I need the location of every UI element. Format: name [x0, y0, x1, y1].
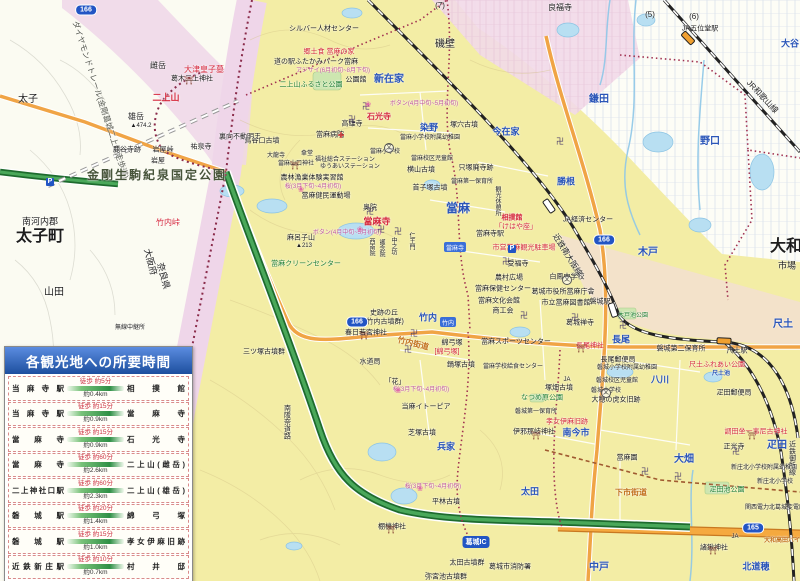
map-label: 當麻校区児童館	[411, 156, 453, 162]
map-label: 受福寺	[508, 261, 529, 268]
map-label: 木戸池公園	[618, 313, 648, 319]
map-label: 雌岳	[150, 62, 166, 70]
legend-walk-time: 徒歩 約60分	[67, 454, 124, 462]
map-label: 新庄北小学校附属幼稚園	[731, 465, 797, 471]
map-label: 南阪奈道路	[284, 405, 291, 440]
map-label: JA	[563, 377, 570, 383]
map-label: ▲213	[296, 243, 312, 249]
legend-walk-time: 徒歩 約20分	[67, 505, 124, 513]
map-label: 當麻文化会館	[478, 298, 520, 305]
map-label: 麻呂子山	[287, 235, 315, 242]
map-label: 石光寺	[367, 113, 391, 121]
legend-distance: 約1.4km	[67, 518, 124, 526]
map-label: 當麻保健センター	[475, 286, 531, 293]
map-label: JR和歌山線	[745, 79, 779, 115]
station-marker	[542, 198, 556, 214]
map-label: 當麻第一保育所	[451, 179, 493, 185]
map-label: 鎌田	[589, 95, 609, 105]
legend-walk-arrow: 徒歩 約15分約1.0km	[64, 531, 127, 552]
legend-from-station: 磐城駅	[12, 536, 64, 547]
map-label: 大阪府	[142, 248, 158, 276]
map-label: 奈良県	[155, 262, 171, 290]
legend-row: 磐城駅徒歩 約20分約1.4km綿弓塚	[8, 504, 189, 529]
map-label: 八川	[651, 376, 669, 385]
map-label: なつめ原公園	[521, 395, 563, 402]
map-label: 勝根	[557, 178, 575, 187]
map-label: 竹内峠	[156, 219, 180, 227]
map-label: 葛城市役所當麻庁舎	[532, 289, 595, 296]
temple-icon: 卍	[366, 208, 374, 216]
map-label: 當麻小学校附属幼稚園	[400, 135, 460, 141]
map-label: 史跡の丘	[370, 310, 398, 317]
map-label: ダイヤモンドトレール(金剛葛城二上縦走歩道)	[71, 20, 130, 179]
map-label: 市営當麻観光駐車場	[493, 245, 556, 252]
legend-walk-time: 徒歩 約5分	[67, 378, 124, 386]
map-label: ▲474.2	[131, 123, 152, 129]
temple-icon: 卍	[502, 258, 510, 266]
map-label: 疋田	[767, 441, 787, 451]
legend-destination: 二上山(雌岳)	[127, 459, 185, 470]
map-label: 當麻寺駅	[476, 231, 504, 238]
legend-walk-time: 徒歩 約15分	[67, 403, 124, 411]
map-label: 綿弓塚	[442, 340, 463, 347]
hospital-icon: ✚	[338, 132, 345, 140]
map-label: 近鉄南大阪線	[551, 233, 583, 278]
map-label: 金剛生駒紀泉国定公園	[87, 169, 227, 181]
legend-walk-arrow: 徒歩 約15分約0.9km	[64, 403, 127, 424]
map-label: 大龍寺	[267, 153, 285, 159]
map-label: 二上山	[152, 94, 179, 103]
shrine-icon: ⛩	[184, 77, 194, 85]
map-label: 新在家	[374, 75, 404, 85]
map-label: 竹内街道	[397, 336, 430, 352]
legend-destination: 二上山(雄岳)	[127, 485, 185, 496]
map-label: 無線中継所	[115, 325, 145, 331]
map-label: 尺土駅	[727, 348, 748, 355]
map-label: 孝女伊麻旧跡	[546, 419, 588, 426]
temple-icon: 卍	[556, 138, 564, 146]
parking-icon: P	[46, 178, 54, 186]
map-label: 磐城第二保育所	[657, 346, 706, 353]
tourist-map-taima-katsuragi: 太子南河内郡太子町山田ダイヤモンドトレール(金剛葛城二上縦走歩道)雌岳大津皇子墓…	[0, 0, 800, 581]
legend-row: 二上神社口駅徒歩 約60分約2.3km二上山(雄岳)	[8, 478, 189, 503]
temple-icon: 卍	[641, 468, 649, 476]
legend-walk-arrow: 徒歩 約15分約0.9km	[64, 429, 127, 450]
legend-distance: 約0.9km	[67, 442, 124, 450]
legend-distance: 約2.6km	[67, 467, 124, 475]
map-label: 野口	[700, 137, 720, 147]
map-label: 太子	[18, 95, 38, 105]
map-label: 中之坊	[390, 237, 396, 255]
legend-from-station: 當麻寺	[12, 459, 64, 470]
map-label: ボタン(4月中旬~5月初旬)	[390, 101, 458, 107]
flower-icon: ❀	[395, 387, 402, 395]
legend-row: 當麻寺徒歩 約15分約0.9km石光寺	[8, 427, 189, 452]
map-label: 鳥谷口古墳	[245, 138, 280, 145]
map-label: 下市街道	[615, 489, 647, 497]
map-label: 農林漁業体験実習館	[281, 175, 344, 182]
shrine-icon: ⛩	[359, 332, 369, 340]
map-label: シルバー人材センター	[289, 26, 359, 33]
map-label: (竹内古墳群)	[364, 319, 404, 326]
map-label: 大和高田バイパス	[764, 538, 800, 544]
legend-from-station: 二上神社口駅	[12, 485, 64, 496]
map-label: 護念院	[378, 239, 384, 257]
legend-distance: 約0.9km	[67, 416, 124, 424]
legend-row: 近鉄新庄駅徒歩 約10分約0.7km村井邸	[8, 555, 189, 580]
map-label: 観光休憩所	[494, 186, 500, 216]
temple-icon: 卍	[404, 346, 412, 354]
legend-distance: 約0.4km	[67, 391, 124, 399]
legend-walk-arrow: 徒歩 約20分約1.4km	[64, 505, 127, 526]
map-label: 大穂の虎女旧跡	[592, 397, 641, 404]
flower-icon: ❀	[298, 186, 305, 194]
legend-from-station: 近鉄新庄駅	[12, 561, 64, 572]
map-label: 関西電力北葛城変電所	[745, 505, 800, 511]
temple-icon: 卍	[619, 322, 627, 330]
legend-distance: 約1.0km	[67, 544, 124, 552]
map-label: 雄岳	[128, 113, 144, 121]
temple-icon: 卍	[377, 226, 385, 234]
map-label: 南今市	[562, 429, 589, 438]
map-label: 疋田郵便局	[717, 390, 752, 397]
legend-rows: 当麻寺駅徒歩 約5分約0.4km相撲館当麻寺駅徒歩 約15分約0.9km當麻寺當…	[5, 374, 192, 581]
temple-icon: 卍	[394, 228, 402, 236]
map-label: 水道局	[360, 359, 381, 366]
parking-icon: P	[508, 245, 516, 253]
map-label: 鹿谷寺跡	[113, 147, 141, 154]
temple-icon: 卍	[348, 116, 356, 124]
map-label: 桜(3月下旬~4月初旬)	[285, 184, 341, 190]
shrine-icon: ⛩	[708, 547, 718, 555]
map-label: 平林古墳	[432, 499, 460, 506]
map-label: 岩屋峠	[153, 147, 174, 154]
legend-walk-time: 徒歩 約15分	[67, 429, 124, 437]
temple-icon: 卍	[674, 473, 682, 481]
map-label: (5)	[645, 11, 655, 19]
route-shield: 166	[593, 235, 615, 246]
shrine-icon: ⛩	[386, 526, 396, 534]
legend-walk-arrow: 徒歩 約60分約2.3km	[64, 480, 127, 501]
legend-destination: 村井邸	[127, 561, 185, 572]
legend-destination: 綿弓塚	[127, 510, 185, 521]
map-label: 染野	[420, 124, 438, 133]
legend-from-station: 当麻寺駅	[12, 408, 64, 419]
map-label: 磐城校区児童館	[596, 378, 638, 384]
map-label: 太田古墳群	[450, 560, 485, 567]
route-shield: 166	[346, 317, 368, 328]
map-label: 當麻学校給食センター	[483, 364, 543, 370]
busstop-chip: 竹内	[440, 317, 456, 327]
map-label: 塚畑古墳	[545, 385, 573, 392]
map-label: 太田	[521, 488, 539, 497]
shrine-icon: ⛩	[747, 432, 757, 440]
school-icon: 文	[601, 388, 611, 398]
map-label: 長尾	[612, 336, 630, 345]
map-label: 横山古墳	[407, 167, 435, 174]
map-label: 郷土食 當麻の家	[304, 49, 355, 56]
map-label: 當麻健民運動場	[302, 193, 351, 200]
map-label: 木戸	[638, 248, 658, 258]
map-label: 北道穂	[742, 563, 769, 572]
map-label: 磐城小学校附属幼稚園	[597, 365, 657, 371]
map-label: 仁王門	[408, 232, 414, 250]
legend-destination: 相撲館	[127, 383, 185, 394]
route-shield: 165	[742, 523, 764, 534]
map-label: 鍋塚古墳	[447, 362, 475, 369]
map-label: 疋田池公園	[710, 487, 745, 494]
map-label: 桜(3月下旬~4月初旬)	[405, 484, 461, 490]
legend-distance: 約2.3km	[67, 493, 124, 501]
map-label: 大津皇子墓	[184, 66, 224, 74]
legend-destination: 孝女伊麻旧跡	[127, 536, 185, 547]
legend-walk-time: 徒歩 約10分	[67, 556, 124, 564]
map-label: 二上山ふるさと公園	[280, 82, 343, 89]
map-label: 傘堂	[301, 151, 313, 157]
legend-walk-arrow: 徒歩 約5分約0.4km	[64, 378, 127, 399]
map-label: 磐城第一保育所	[515, 409, 557, 415]
flower-icon: ❀	[365, 101, 372, 109]
shrine-icon: ⛩	[290, 162, 300, 170]
map-label: 當麻	[446, 202, 470, 214]
legend-walk-time: 徒歩 約60分	[67, 480, 124, 488]
map-label: 商工会	[493, 308, 514, 315]
map-label: 公園館	[346, 77, 367, 84]
map-label: 今在家	[492, 128, 519, 137]
map-label: 市立當麻図書館	[542, 300, 591, 307]
school-icon: 文	[384, 143, 394, 153]
map-label: 長尾郵便局	[601, 357, 636, 364]
map-label: 道の駅ふたかみパーク當麻	[274, 59, 358, 66]
legend-walk-arrow: 徒歩 約60分約2.6km	[64, 454, 127, 475]
legend-row: 当麻寺駅徒歩 約15分約0.9km當麻寺	[8, 402, 189, 427]
map-label: 近鉄御所線	[789, 441, 796, 476]
flower-icon: ❀	[357, 226, 364, 234]
map-label: ボタン(4月中旬~5月初旬)	[313, 230, 381, 236]
legend-destination: 石光寺	[127, 434, 185, 445]
map-label: 福祉総合ステーション	[315, 157, 375, 163]
map-label: JA	[731, 534, 738, 540]
map-label: 兵家	[437, 443, 455, 452]
map-label: アジサイ(6月初旬~8月下旬)	[296, 68, 370, 74]
station-marker	[716, 337, 731, 345]
map-label: 大和	[770, 239, 800, 255]
map-label: 三ツ塚古墳群	[243, 349, 285, 356]
map-label: 中戸	[589, 563, 609, 573]
legend-title: 各観光地への所要時間	[5, 347, 192, 374]
map-label: 当麻イトーピア	[402, 404, 451, 411]
legend-from-station: 當麻寺	[12, 434, 64, 445]
legend-row: 磐城駅徒歩 約15分約1.0km孝女伊麻旧跡	[8, 529, 189, 554]
map-label: 「けはや座」	[495, 224, 537, 231]
map-label: 尺土池	[712, 371, 730, 377]
map-label: 新庄北小学校	[757, 479, 793, 485]
map-label: JA経済センター	[563, 217, 613, 224]
map-label: (6)	[689, 13, 699, 21]
flower-icon: ❀	[417, 485, 424, 493]
map-label: 當麻園	[617, 455, 638, 462]
route-shield: 166	[75, 5, 97, 16]
legend-row: 当麻寺駅徒歩 約5分約0.4km相撲館	[8, 376, 189, 401]
legend-from-station: 当麻寺駅	[12, 383, 64, 394]
legend-from-station: 磐城駅	[12, 510, 64, 521]
map-label: 大畑	[674, 455, 694, 465]
map-label: 南河内郡	[22, 218, 58, 227]
shrine-icon: ⛩	[531, 432, 541, 440]
shrine-icon: ⛩	[576, 345, 586, 353]
map-label: 大谷	[781, 40, 799, 49]
map-label: 磯壁	[435, 40, 455, 50]
station-marker	[607, 302, 618, 318]
temple-icon: 卍	[571, 314, 579, 322]
temple-icon: 卍	[410, 330, 418, 338]
busstop-chip: 當麻寺	[444, 242, 466, 252]
travel-time-legend: 各観光地への所要時間 当麻寺駅徒歩 約5分約0.4km相撲館当麻寺駅徒歩 約15…	[4, 346, 193, 581]
temple-icon: 卍	[520, 312, 528, 320]
map-label: 「花」	[385, 379, 406, 386]
map-label: 太子町	[16, 229, 64, 245]
map-label: 只塚廃寺跡	[459, 165, 494, 172]
station-marker	[680, 30, 695, 46]
school-icon: 文	[562, 275, 572, 285]
map-label: 塚穴古墳	[450, 122, 478, 129]
map-label: 弥宮池古墳群	[425, 574, 467, 581]
map-label: [綿弓塚]	[435, 349, 460, 356]
map-label: 竹内	[419, 314, 437, 323]
temple-icon: 卍	[732, 448, 740, 456]
map-label: 西南院	[368, 238, 374, 256]
map-label: 農村広場	[495, 275, 523, 282]
map-label: ゆうあいステーション	[320, 164, 380, 170]
map-label: 尺土ふれあい公園	[689, 362, 745, 369]
legend-distance: 約0.7km	[67, 569, 124, 577]
map-label: 當麻クリーンセンター	[271, 261, 341, 268]
map-label: 良福寺	[548, 4, 572, 12]
map-label: 祐泉寺	[191, 144, 212, 151]
map-label: 芝塚古墳	[408, 430, 436, 437]
map-label: 山田	[44, 288, 64, 298]
interchange-badge: 葛城IC	[463, 536, 490, 548]
legend-row: 當麻寺徒歩 約60分約2.6km二上山(雌岳)	[8, 453, 189, 478]
map-label: 尺土	[773, 320, 793, 330]
map-label: 相撲館	[502, 215, 523, 222]
map-label: 葛城市消防署	[489, 564, 531, 571]
legend-walk-arrow: 徒歩 約10分約0.7km	[64, 556, 127, 577]
map-label: (7)	[435, 2, 445, 10]
map-label: 首子塚古墳	[413, 185, 448, 192]
legend-walk-time: 徒歩 約15分	[67, 531, 124, 539]
map-label: 市場	[778, 262, 796, 271]
map-label: 當麻スポーツセンター	[481, 339, 551, 346]
legend-destination: 當麻寺	[127, 408, 185, 419]
map-label: 岩屋	[151, 158, 165, 165]
